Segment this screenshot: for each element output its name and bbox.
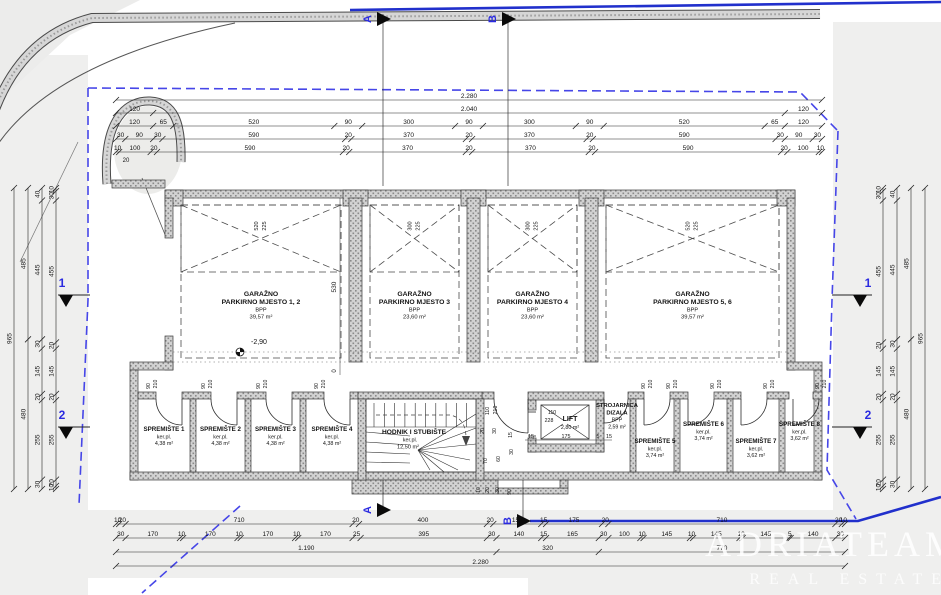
section-letter: A [362,506,374,514]
platform-dim: 225 [534,221,540,230]
dim-value: 65 [160,119,168,126]
dim-value: 30 [35,480,42,488]
dim-value: 175 [569,517,580,524]
dim-value: 100 [619,531,630,538]
garage-area-label: BPP [409,308,420,314]
dim-value: 2.280 [461,93,478,100]
dim-value: 100 [129,145,140,152]
storage-name: SPREMIŠTE 3 [255,425,296,433]
dim-value: 170 [147,531,158,538]
dim-value: 590 [683,145,694,152]
storage-area: 3,62 m² [790,436,808,442]
dim-value: 30 [35,340,42,348]
dim-value: 30 [890,340,897,348]
notch-dim: 90 [507,489,513,495]
dim-value: 445 [35,264,42,275]
platform-dim: 300 [408,221,414,230]
dim-value: 140 [513,531,524,538]
dim-value: 20 [486,517,494,524]
lift-area: 2,80 m² [561,425,579,431]
corridor-area: 12,50 m² [397,445,419,451]
dim-value: 520 [248,119,259,126]
dim-value: 400 [418,517,429,524]
dim-value: 30 [117,531,125,538]
platform-dim: 520 [254,221,260,230]
storage-area: 3,74 m² [646,453,664,459]
dim-value: 20 [352,517,360,524]
notch-dim: 70 [483,458,489,464]
dim-value: 120 [798,119,809,126]
floor-plan-page: GARAŽNOPARKIRNO MJESTO 1, 2BPP39,57 m²52… [0,0,941,595]
dim-value: 10 [817,145,825,152]
dim-value: 480 [21,408,28,419]
notch-dim: 60 [496,456,502,462]
dim-value: 20 [890,393,897,401]
garage-area-label: BPP [687,308,698,314]
dim-value: 145 [35,365,42,376]
dim-value: 10 [235,531,243,538]
garage-area-value: 23,60 m² [403,315,426,321]
machine-room-area-value: 2,59 m² [608,425,626,431]
section-number: 1 [59,276,66,290]
dim-value: 370 [402,145,413,152]
dim-value: 20 [342,145,350,152]
garage-area-value: 39,57 m² [250,315,273,321]
storage-area: 4,38 m² [323,441,341,447]
watermark-line2: REAL ESTATE [749,571,941,588]
dim-value: 2.040 [461,106,478,113]
elevation-label: -2,90 [251,339,267,346]
lift-pit-dim: 15 [528,434,534,440]
storage-finish: ker.pl. [213,435,227,441]
section-number: 2 [59,408,66,422]
dim-value: 590 [679,132,690,139]
storage-area: 4,38 m² [266,441,284,447]
lift-pit-dim: 175 [562,434,571,440]
dim-value: 120 [129,106,140,113]
door-width-dim: 90 [641,383,647,389]
dim-value: 20 [465,132,473,139]
dim-value: 20 [119,517,127,524]
door-height-dim: 210 [673,380,679,389]
dim-value: 10 [876,186,883,194]
section-number: 1 [865,276,872,290]
garage-depth-dim: 530 [331,281,338,292]
dim-value: 480 [904,408,911,419]
door-width-dim: 90 [815,383,821,389]
storage-name: SPREMIŠTE 7 [736,437,777,445]
dim-value: 590 [245,145,256,152]
garage-title: GARAŽNO [397,289,431,298]
storage-name: SPREMIŠTE 5 [635,437,676,445]
dim-value: 20 [49,393,56,401]
dim-value: 145 [49,365,56,376]
dim-value: 370 [525,145,536,152]
corridor-finish: ker.pl. [403,438,417,444]
storage-area: 3,74 m² [694,436,712,442]
lift-pit-dim: 5 [597,434,600,440]
door-width-dim: 90 [763,383,769,389]
extra-dim: 20 [123,158,130,164]
platform-dim: 225 [416,221,422,230]
dim-value: 20 [586,132,594,139]
dim-value: 170 [262,531,273,538]
notch-dim: 30 [492,428,498,434]
dim-value: 90 [465,119,473,126]
dim-value: 145 [876,365,883,376]
dim-value: 455 [876,266,883,277]
garage-area-label: BPP [527,308,538,314]
dim-value: 20 [876,393,883,401]
notch-dim: 10 [476,487,482,493]
garage-title: GARAŽNO [515,289,549,298]
storage-name: SPREMIŠTE 2 [200,425,241,433]
dim-value: 145 [661,531,672,538]
dim-value: 395 [418,531,429,538]
dim-value: 590 [248,132,259,139]
dim-value: 20 [602,517,610,524]
storage-finish: ker.pl. [268,435,282,441]
dim-value: 520 [679,119,690,126]
notch-dim: 30 [509,449,515,455]
dim-value: 20 [49,342,56,350]
dim-value: 455 [49,266,56,277]
dim-value: 485 [21,258,28,269]
storage-finish: ker.pl. [749,447,763,453]
garage-floor-plan-drawing: GARAŽNOPARKIRNO MJESTO 1, 2BPP39,57 m²52… [0,0,941,595]
platform-dim: 225 [694,221,700,230]
dim-value: 145 [890,365,897,376]
dim-value: 40 [890,190,897,198]
dim-value: 165 [567,531,578,538]
door-width-dim: 90 [710,383,716,389]
lift-door-dim: 228 [545,418,554,424]
storage-name: SPREMIŠTE 1 [144,425,185,433]
section-letter: A [362,15,374,23]
dim-value: 485 [904,258,911,269]
storage-name: SPREMIŠTE 8 [779,420,820,428]
dim-value: 10 [876,483,883,491]
dim-value: 20 [35,393,42,401]
dim-value: 1.190 [298,545,315,552]
corridor-door-dim: 110 [485,407,491,415]
dim-value: 20 [781,145,789,152]
lift-name: LIFT [563,416,578,423]
storage-area: 4,38 m² [155,441,173,447]
dim-value: 320 [542,545,553,552]
garage-subtitle: PARKIRNO MJESTO 3 [379,299,450,306]
dim-value: 120 [798,106,809,113]
lift-pit-dim: 15 [606,434,612,440]
dim-value: 25 [353,531,361,538]
dim-value: 10 [840,517,848,524]
machine-room-area-label: BPP [612,418,623,424]
door-width-dim: 90 [201,383,207,389]
dim-value: 30 [876,192,883,200]
platform-dim: 300 [526,221,532,230]
storage-area: 4,38 m² [211,441,229,447]
dim-value: 710 [234,517,245,524]
dim-value: 30 [49,192,56,200]
notch-dim: 15 [508,432,514,438]
notch-dim: 30 [495,487,501,493]
dim-value: 255 [876,434,883,445]
dim-value: 15 [540,531,548,538]
door-height-dim: 210 [321,380,327,389]
dim-value: 170 [320,531,331,538]
storage-finish: ker.pl. [648,447,662,453]
garage-title: GARAŽNO [244,289,278,298]
dim-value: 965 [918,333,925,344]
dim-value: 10 [49,483,56,491]
garage-title: GARAŽNO [675,289,709,298]
storage-finish: ker.pl. [325,435,339,441]
garage-area-label: BPP [255,308,266,314]
dim-value: 965 [7,333,14,344]
dim-value: 20 [876,342,883,350]
garage-subtitle: PARKIRNO MJESTO 4 [497,299,568,306]
door-width-dim: 90 [146,383,152,389]
dim-value: 10 [178,531,186,538]
storage-finish: ker.pl. [696,430,710,436]
dim-value: 10 [49,186,56,194]
door-height-dim: 210 [263,380,269,389]
dim-value: 30 [814,132,822,139]
dim-value: 300 [524,119,535,126]
garage-subtitle: PARKIRNO MJESTO 5, 6 [653,299,732,306]
section-number: 2 [865,408,872,422]
storage-finish: ker.pl. [792,430,806,436]
dim-value: 65 [771,119,779,126]
dim-value: 30 [488,531,496,538]
dim-value: 30 [600,531,608,538]
dim-value: 20 [465,145,473,152]
dim-value: 445 [890,264,897,275]
storage-name: SPREMIŠTE 4 [312,425,353,433]
door-width-dim: 90 [666,383,672,389]
door-height-dim: 210 [770,380,776,389]
storage-finish: ker.pl. [157,435,171,441]
door-height-dim: 210 [208,380,214,389]
corridor-name: HODNIK I STUBIŠTE [382,427,447,436]
lift-door-dim: 110 [548,410,556,416]
storage-name: SPREMIŠTE 6 [683,420,724,428]
watermark-line1: ADRIATEAM [705,524,941,564]
dim-value: 370 [403,132,414,139]
garage-subtitle: PARKIRNO MJESTO 1, 2 [222,299,301,306]
dim-value: 30 [890,480,897,488]
corridor-door-dim: 210 [493,406,499,415]
section-letter: B [502,517,514,525]
dim-value: 10 [293,531,301,538]
machine-room-name: STROJARNICA [596,403,639,409]
platform-dim: 225 [262,221,268,230]
dim-value: 255 [49,434,56,445]
notch-dim: 20 [485,487,491,493]
dim-value: 370 [524,132,535,139]
dim-value: 40 [35,190,42,198]
door-width-dim: 90 [314,383,320,389]
dim-value: 30 [117,132,125,139]
dim-value: 20 [588,145,596,152]
dim-value: 20 [345,132,353,139]
door-width-dim: 90 [256,383,262,389]
dim-value: 10 [114,145,122,152]
dim-value: 255 [35,434,42,445]
platform-dim: 520 [686,221,692,230]
door-height-dim: 210 [153,380,159,389]
dim-value: 710 [716,517,727,524]
dim-value: 170 [205,531,216,538]
door-height-dim: 210 [822,380,828,389]
dim-value: 10 [638,531,646,538]
dim-value: 90 [795,132,803,139]
dim-value: 120 [129,119,140,126]
dim-value: 90 [345,119,353,126]
dim-value: 90 [136,132,144,139]
garage-area-value: 39,57 m² [681,315,704,321]
notch-dim: 20 [480,428,486,434]
dim-value: 300 [403,119,414,126]
garage-area-value: 23,60 m² [521,315,544,321]
dim-value: 90 [586,119,594,126]
dim-value: 255 [890,434,897,445]
door-height-dim: 210 [717,380,723,389]
section-letter: B [487,15,499,23]
dim-value: 20 [150,145,158,152]
dim-value: 15 [540,517,548,524]
dim-value: 10 [688,531,696,538]
dim-value: 30 [154,132,162,139]
dim-value: 2.280 [472,559,489,566]
door-height-dim: 210 [648,380,654,389]
dim-value: 30 [777,132,785,139]
machine-room-name: DIZALA [606,411,628,417]
dim-value: 100 [798,145,809,152]
storage-area: 3,62 m² [747,453,765,459]
